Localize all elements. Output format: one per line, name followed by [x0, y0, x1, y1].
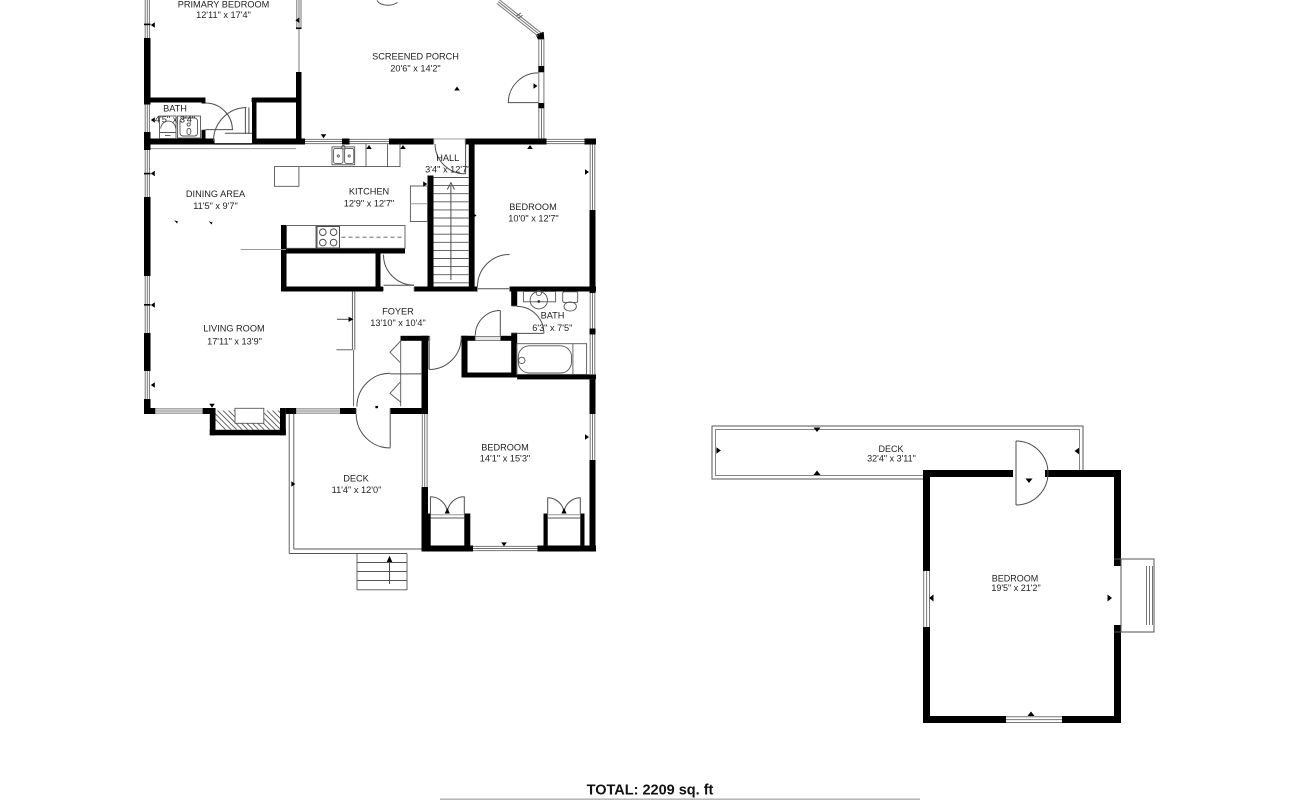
svg-text:KITCHEN: KITCHEN — [349, 187, 389, 197]
svg-text:12'9" x 12'7": 12'9" x 12'7" — [344, 199, 394, 209]
svg-text:HALL: HALL — [436, 153, 459, 163]
svg-text:3'4" x 12'7": 3'4" x 12'7" — [425, 165, 470, 175]
svg-text:BEDROOM: BEDROOM — [481, 443, 528, 453]
svg-text:11'5" x 9'7": 11'5" x 9'7" — [193, 201, 238, 211]
svg-text:BEDROOM: BEDROOM — [509, 202, 556, 212]
svg-text:32'4" x 3'11": 32'4" x 3'11" — [867, 454, 916, 464]
svg-text:4'5" x 3'4": 4'5" x 3'4" — [155, 115, 195, 125]
svg-text:FOYER: FOYER — [382, 306, 414, 316]
svg-text:19'5" x 21'2": 19'5" x 21'2" — [991, 583, 1040, 593]
svg-text:TOTAL: 2209 sq. ft: TOTAL: 2209 sq. ft — [587, 783, 714, 799]
svg-text:17'11" x 13'9": 17'11" x 13'9" — [207, 337, 262, 347]
svg-text:BATH: BATH — [163, 104, 187, 114]
svg-text:6'3" x 7'5": 6'3" x 7'5" — [532, 323, 572, 333]
svg-text:13'10" x 10'4": 13'10" x 10'4" — [370, 318, 426, 328]
svg-text:14'1" x 15'3": 14'1" x 15'3" — [480, 454, 530, 464]
svg-text:SCREENED PORCH: SCREENED PORCH — [372, 52, 459, 62]
svg-text:DECK: DECK — [878, 444, 903, 454]
svg-text:BATH: BATH — [541, 311, 565, 321]
svg-text:PRIMARY BEDROOM: PRIMARY BEDROOM — [178, 0, 270, 10]
svg-text:DINING AREA: DINING AREA — [186, 189, 246, 199]
svg-text:BEDROOM: BEDROOM — [992, 574, 1039, 584]
svg-text:11'4" x 12'0": 11'4" x 12'0" — [332, 485, 382, 495]
svg-text:12'11" x 17'4": 12'11" x 17'4" — [196, 10, 251, 20]
svg-text:DECK: DECK — [343, 474, 369, 484]
svg-text:20'6" x 14'2": 20'6" x 14'2" — [390, 64, 440, 74]
svg-text:10'0" x 12'7": 10'0" x 12'7" — [508, 214, 558, 224]
svg-text:LIVING ROOM: LIVING ROOM — [203, 324, 264, 334]
